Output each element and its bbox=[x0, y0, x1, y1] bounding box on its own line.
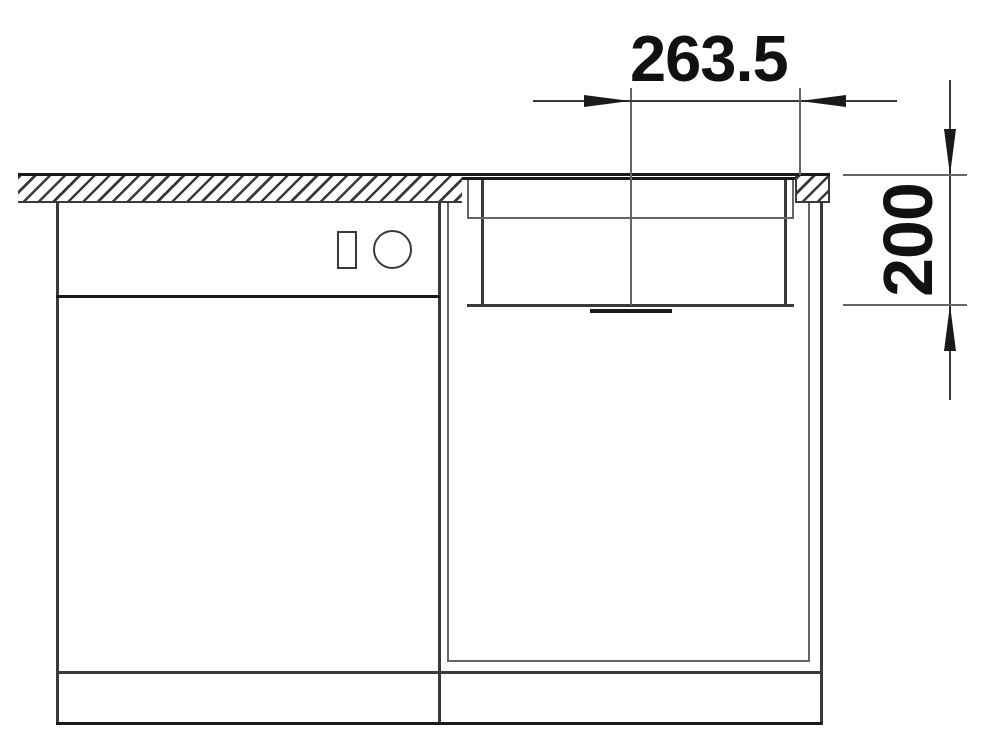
dim-vertical-arrow-top bbox=[944, 129, 956, 175]
dim-vertical-arrow-bottom bbox=[944, 305, 956, 351]
cabinet-bottom-line bbox=[56, 722, 822, 725]
right-cabinet-right-outer-side bbox=[820, 203, 823, 725]
dishwasher-control-knob bbox=[373, 230, 412, 269]
sink-center-line bbox=[630, 88, 632, 305]
right-cabinet-left-inner-side bbox=[447, 203, 449, 662]
right-cabinet-inner-bottom-line bbox=[447, 660, 810, 662]
drawing-canvas: 263.5 200 bbox=[0, 0, 990, 753]
right-cabinet-right-inner-side bbox=[808, 203, 810, 662]
dim-vertical-label: 200 bbox=[873, 183, 943, 297]
dim-horizontal-label: 263.5 bbox=[630, 26, 788, 91]
dim-horizontal-extension-right bbox=[799, 88, 801, 175]
left-cabinet-left-side bbox=[56, 203, 59, 725]
sink-drain-line bbox=[590, 309, 672, 313]
sink-bowl-right-wall bbox=[784, 180, 787, 306]
dim-vertical-line bbox=[949, 80, 951, 400]
left-cabinet-right-side bbox=[438, 203, 441, 725]
sink-bowl-left-wall bbox=[481, 180, 484, 306]
dim-horizontal-arrow-left bbox=[584, 95, 630, 107]
cabinet-plinth-top-line bbox=[56, 671, 822, 674]
sink-rim-top-line bbox=[462, 177, 795, 180]
sink-rim-outer-right bbox=[792, 180, 794, 219]
dim-horizontal-arrow-right bbox=[800, 95, 846, 107]
sink-rim-outer-left bbox=[467, 180, 469, 219]
countertop-right-section bbox=[795, 176, 830, 203]
countertop-left-section bbox=[18, 176, 462, 203]
left-cabinet-door-top-line bbox=[56, 295, 440, 298]
dishwasher-control-rect bbox=[337, 231, 357, 269]
